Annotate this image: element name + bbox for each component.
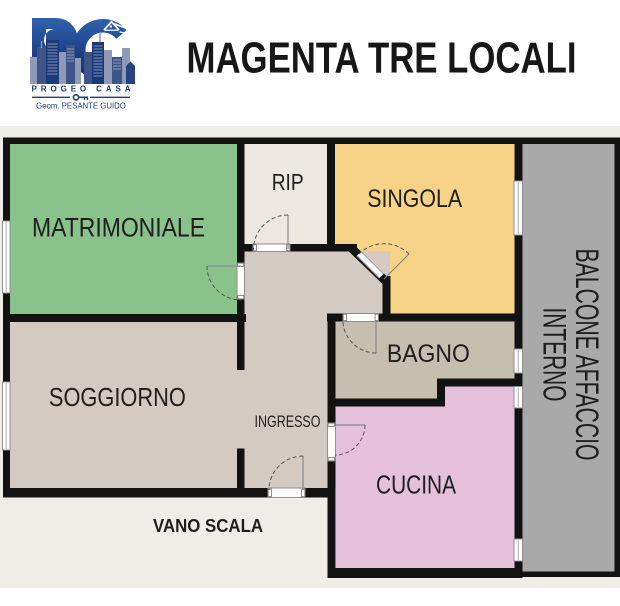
svg-text:SINGOLA: SINGOLA bbox=[367, 185, 462, 213]
svg-text:MAGENTA TRE LOCALI: MAGENTA TRE LOCALI bbox=[187, 34, 577, 83]
svg-text:RIP: RIP bbox=[272, 169, 304, 195]
svg-text:SOGGIORNO: SOGGIORNO bbox=[49, 382, 186, 412]
svg-text:BALCONE AFFACCIO: BALCONE AFFACCIO bbox=[569, 249, 605, 461]
svg-text:INTERNO: INTERNO bbox=[537, 308, 573, 402]
svg-text:BAGNO: BAGNO bbox=[387, 340, 470, 368]
svg-text:VANO SCALA: VANO SCALA bbox=[153, 516, 263, 536]
svg-text:MATRIMONIALE: MATRIMONIALE bbox=[32, 213, 205, 243]
svg-text:PROGEO CASA: PROGEO CASA bbox=[32, 85, 135, 94]
svg-text:INGRESSO: INGRESSO bbox=[255, 412, 321, 431]
svg-text:Geom. PESANTE GUIDO: Geom. PESANTE GUIDO bbox=[36, 102, 126, 111]
svg-text:CUCINA: CUCINA bbox=[376, 470, 457, 500]
